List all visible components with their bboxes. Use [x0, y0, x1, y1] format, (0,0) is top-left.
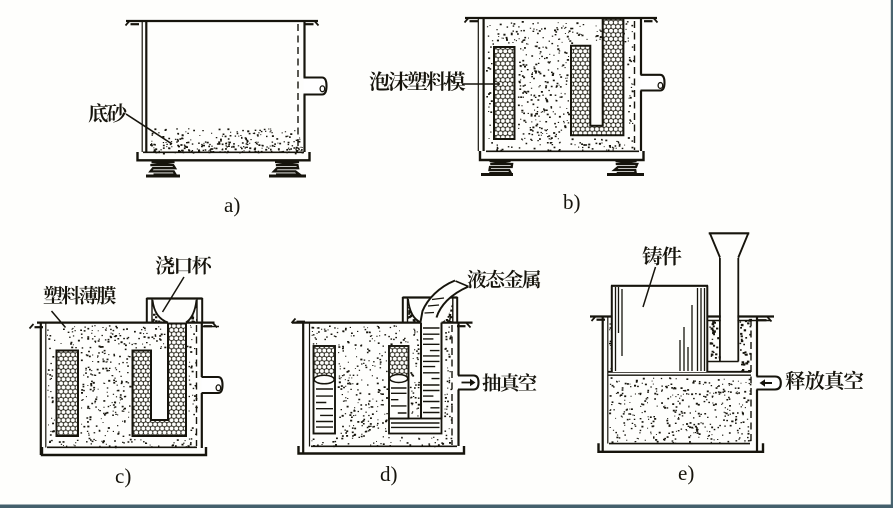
svg-text:e): e)	[678, 461, 694, 485]
svg-text:d): d)	[380, 462, 398, 486]
svg-text:c): c)	[115, 464, 131, 488]
svg-text:b): b)	[563, 190, 581, 214]
svg-text:a): a)	[224, 193, 240, 217]
